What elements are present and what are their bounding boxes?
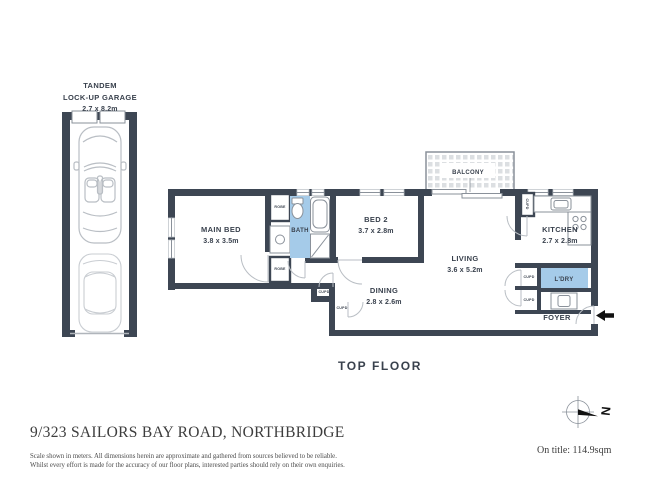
bath-label: BATH	[291, 225, 308, 237]
robe-bottom-label: ROBE	[274, 267, 285, 271]
robe-top-label: ROBE	[274, 205, 285, 209]
sliding-door	[432, 190, 502, 199]
garage-dims: 2.7 x 8.2m	[63, 104, 137, 116]
entry-arrow-icon	[596, 310, 614, 321]
dining-name: DINING	[366, 285, 401, 297]
living-name: LIVING	[447, 253, 482, 265]
compass-north-label: N	[598, 406, 613, 416]
disclaimer-line2: Whilst every effort is made for the accu…	[30, 461, 345, 470]
foyer-label: FOYER	[543, 312, 571, 324]
garage-structure	[62, 111, 137, 337]
bed2-dims: 3.7 x 2.8m	[358, 226, 393, 238]
dining-dims: 2.8 x 2.6m	[366, 297, 401, 309]
kitchen-name: KITCHEN	[542, 224, 578, 236]
cupd-kitchen-label: CUPD	[525, 199, 529, 210]
living-dims: 3.6 x 5.2m	[447, 265, 482, 277]
garage-name-line1: TANDEM	[63, 80, 137, 92]
toilet-icon	[292, 198, 303, 219]
area-on-title: On title: 114.9sqm	[537, 445, 611, 456]
cupd-dining-top-label: CUPD	[319, 290, 330, 294]
shower-icon	[311, 234, 330, 258]
laundry-name: L'DRY	[554, 274, 573, 286]
cupd-laundry-bottom-label: CUPD	[524, 298, 535, 302]
cupd-dining-bottom-label: CUPD	[337, 306, 348, 310]
garage-name-line2: LOCK-UP GARAGE	[63, 92, 137, 104]
bath-name: BATH	[291, 225, 308, 237]
bed2-name: BED 2	[358, 214, 393, 226]
kitchen-label: KITCHEN 2.7 x 2.8m	[542, 224, 578, 248]
laundry-label: L'DRY	[554, 274, 573, 286]
compass-icon	[562, 396, 598, 428]
washing-machine-icon	[551, 293, 577, 309]
main-bed-name: MAIN BED	[201, 224, 241, 236]
bed2-label: BED 2 3.7 x 2.8m	[358, 214, 393, 238]
floor-title: TOP FLOOR	[338, 360, 422, 372]
disclaimer-line1: Scale shown in meters. All dimensions he…	[30, 452, 345, 461]
foyer-name: FOYER	[543, 312, 571, 324]
garage-label: TANDEM LOCK-UP GARAGE 2.7 x 8.2m	[63, 80, 137, 116]
main-bed-label: MAIN BED 3.8 x 3.5m	[201, 224, 241, 248]
garage-car-top-icon	[74, 127, 126, 243]
balcony-name: BALCONY	[452, 167, 484, 179]
balcony-label: BALCONY	[452, 167, 484, 179]
dining-label: DINING 2.8 x 2.6m	[366, 285, 401, 309]
living-label: LIVING 3.6 x 5.2m	[447, 253, 482, 277]
main-bed-dims: 3.8 x 3.5m	[201, 236, 241, 248]
address-title: 9/323 SAILORS BAY ROAD, NORTHBRIDGE	[30, 424, 345, 442]
bathtub-icon	[311, 197, 330, 232]
kitchen-dims: 2.7 x 2.8m	[542, 236, 578, 248]
floorplan-canvas: TANDEM LOCK-UP GARAGE 2.7 x 8.2m MAIN BE…	[0, 0, 660, 495]
garage-car-bottom-icon	[79, 254, 121, 332]
cupd-laundry-top-label: CUPD	[524, 275, 535, 279]
disclaimer: Scale shown in meters. All dimensions he…	[30, 452, 345, 470]
